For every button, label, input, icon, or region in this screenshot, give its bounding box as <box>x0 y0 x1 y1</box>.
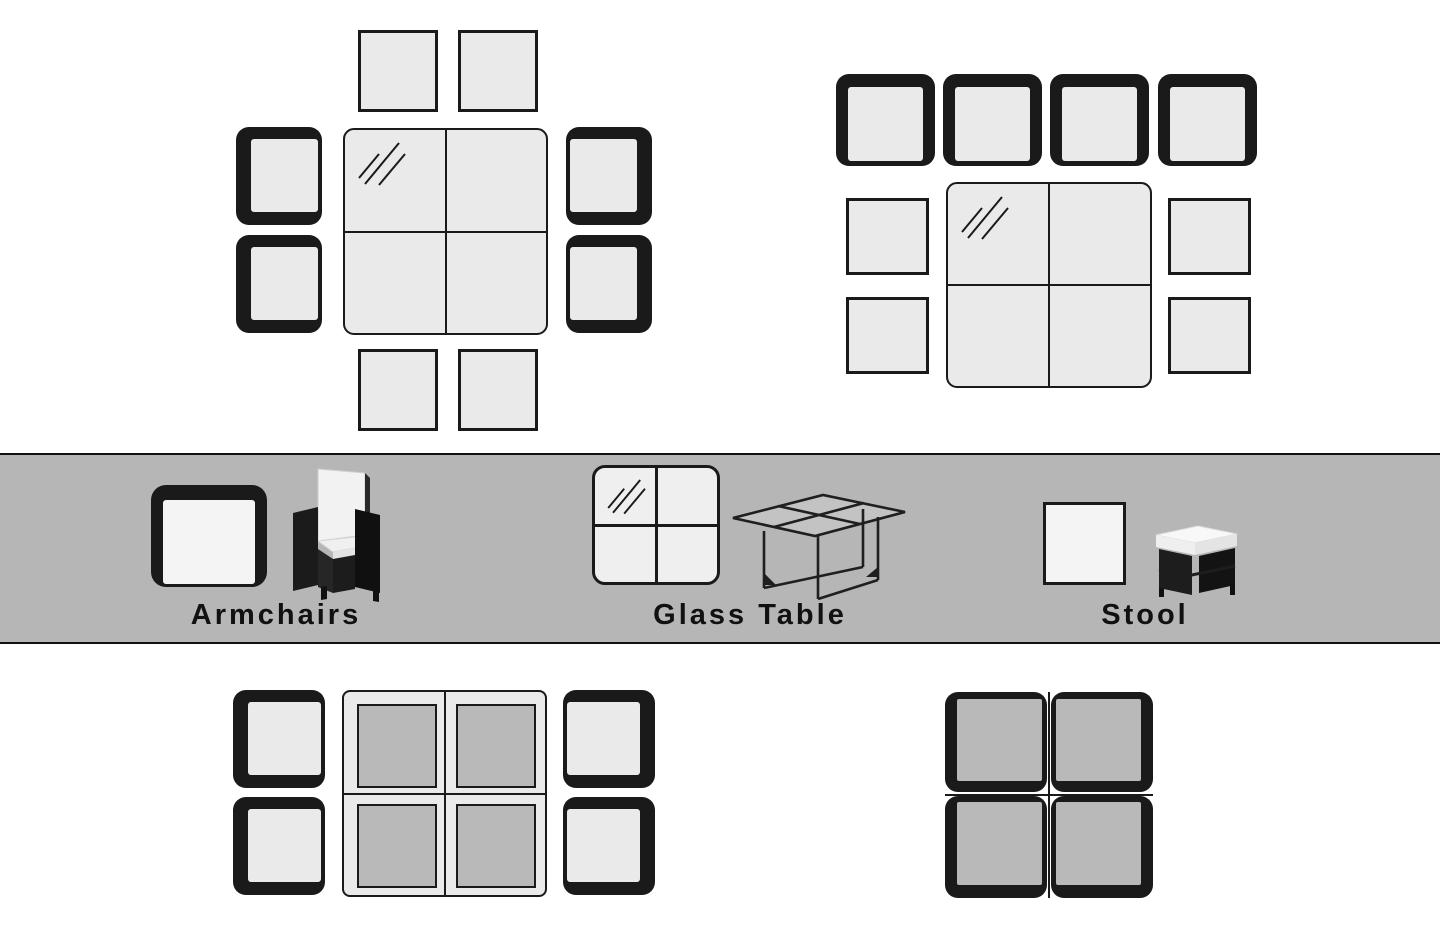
legend-label-armchairs: Armchairs <box>156 597 396 633</box>
layout-top-right <box>836 74 1257 390</box>
legend-label-stool: Stool <box>1025 597 1265 633</box>
glass-shine-icon <box>355 138 415 193</box>
glass-table-photo <box>726 485 911 603</box>
armchair-symbol <box>836 74 935 166</box>
armchair-symbol <box>1158 74 1257 166</box>
legend-label-glass-table: Glass Table <box>630 597 870 633</box>
armchair-seat <box>570 247 637 320</box>
tucked-stool-symbol <box>456 804 536 888</box>
table-divider <box>948 284 1150 286</box>
armchair-seat <box>567 809 640 882</box>
stool-symbol <box>1168 297 1251 374</box>
armchair-symbol <box>236 127 322 225</box>
armchair-seat <box>248 702 321 775</box>
armchair-symbol <box>151 485 267 587</box>
tucked-stool-symbol <box>357 804 437 888</box>
armchair-symbol <box>233 797 325 895</box>
stool-symbol <box>1168 198 1251 275</box>
table-divider <box>344 793 545 795</box>
stool-symbol <box>358 349 438 431</box>
glass-shine-icon <box>958 192 1018 247</box>
armchair-symbol <box>236 235 322 333</box>
armchair-symbol <box>943 74 1042 166</box>
armchair-symbol <box>233 690 325 788</box>
armchair-seat <box>570 139 637 212</box>
table-divider <box>595 524 717 527</box>
armchair-symbol <box>1051 796 1153 898</box>
stool-symbol <box>358 30 438 112</box>
stool-symbol <box>458 349 538 431</box>
tucked-stool-symbol <box>456 704 536 788</box>
armchair-seat <box>1170 87 1245 161</box>
armchair-symbol <box>566 235 652 333</box>
stool-symbol <box>846 297 929 374</box>
armchair-symbol <box>563 797 655 895</box>
glass-table-symbol <box>342 690 547 897</box>
armchair-seat <box>567 702 640 775</box>
armchair-seat <box>163 500 255 584</box>
armchair-symbol <box>563 690 655 788</box>
armchair-symbol <box>566 127 652 225</box>
armchair-seat <box>1056 699 1141 781</box>
armchair-symbol <box>1051 692 1153 792</box>
stool-symbol <box>458 30 538 112</box>
armchair-seat <box>848 87 923 161</box>
tucked-stool-symbol <box>357 704 437 788</box>
armchair-seat <box>957 699 1042 781</box>
armchair-seat <box>248 809 321 882</box>
stool-symbol <box>846 198 929 275</box>
layout-bottom-left <box>233 690 655 897</box>
armchair-symbol <box>945 796 1047 898</box>
cube-dining-set-diagram: Armchairs <box>0 0 1440 936</box>
armchair-seat <box>1056 802 1141 885</box>
stool-symbol <box>1043 502 1126 585</box>
legend-band: Armchairs <box>0 453 1440 644</box>
armchair-seat <box>955 87 1030 161</box>
armchair-photo <box>285 463 390 603</box>
armchair-symbol <box>945 692 1047 792</box>
armchair-seat <box>957 802 1042 885</box>
layout-bottom-right <box>945 692 1153 898</box>
glass-shine-icon <box>605 476 653 520</box>
armchair-seat <box>251 247 318 320</box>
armchair-symbol <box>1050 74 1149 166</box>
table-divider <box>345 231 546 233</box>
armchair-seat <box>1062 87 1137 161</box>
layout-top-left <box>230 25 655 435</box>
armchair-seat <box>251 139 318 212</box>
stool-photo <box>1146 505 1246 603</box>
glass-table-symbol <box>946 182 1152 388</box>
glass-table-symbol <box>343 128 548 335</box>
glass-table-symbol <box>592 465 720 585</box>
